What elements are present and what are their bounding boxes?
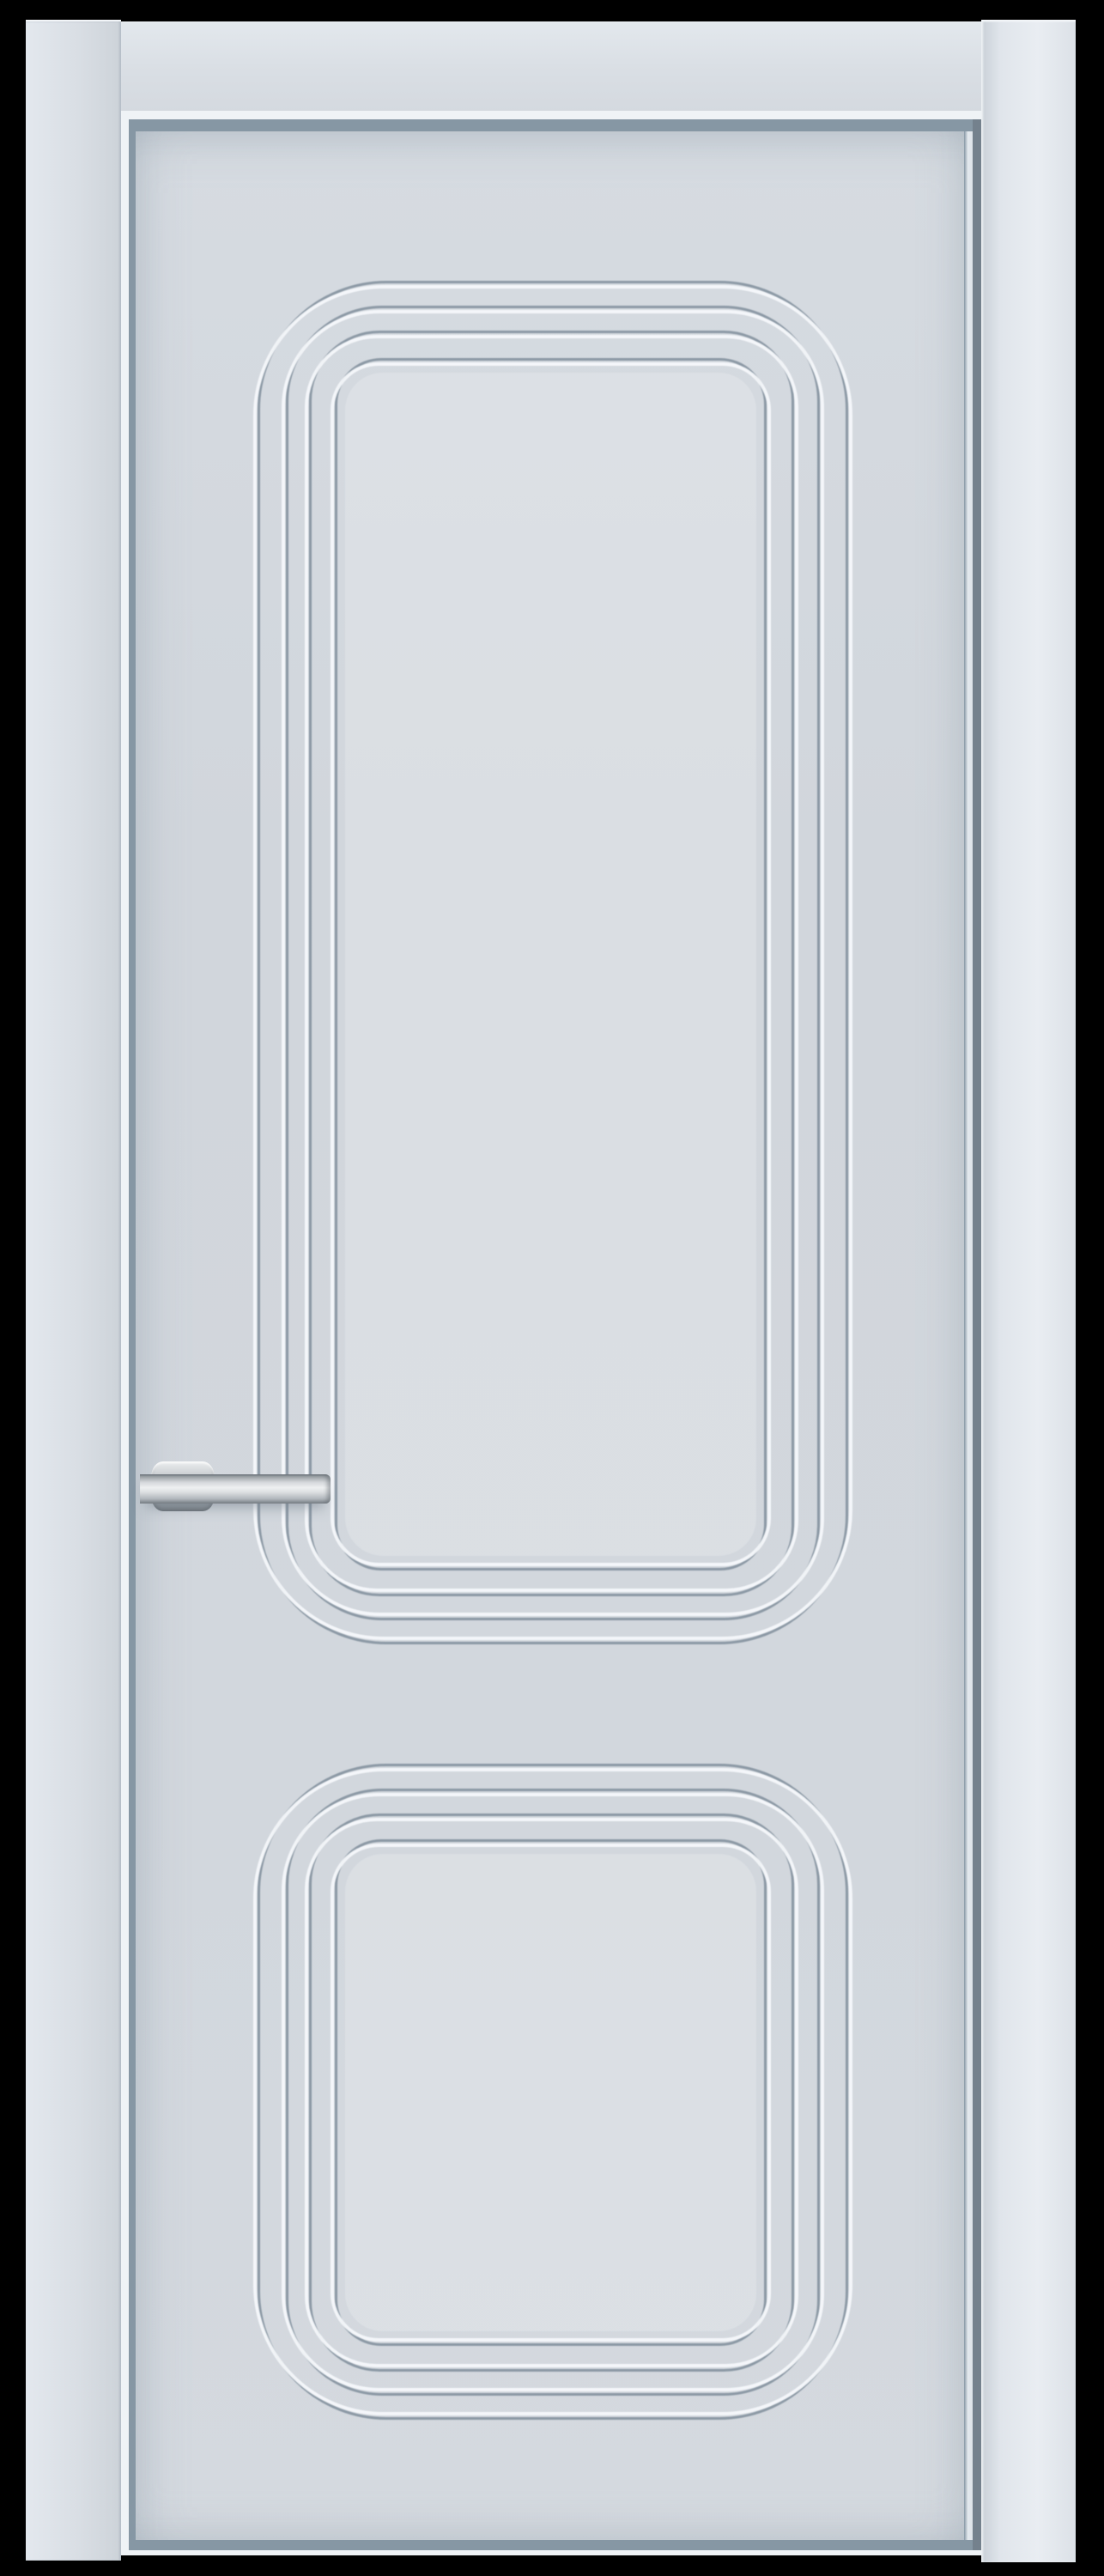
panel-moldings [0,0,1104,2576]
door-product-photo [0,0,1104,2576]
upper-panel-center-field [345,373,756,1556]
door-handle-lever [140,1474,331,1504]
lower-panel-center-field [345,1854,756,2331]
